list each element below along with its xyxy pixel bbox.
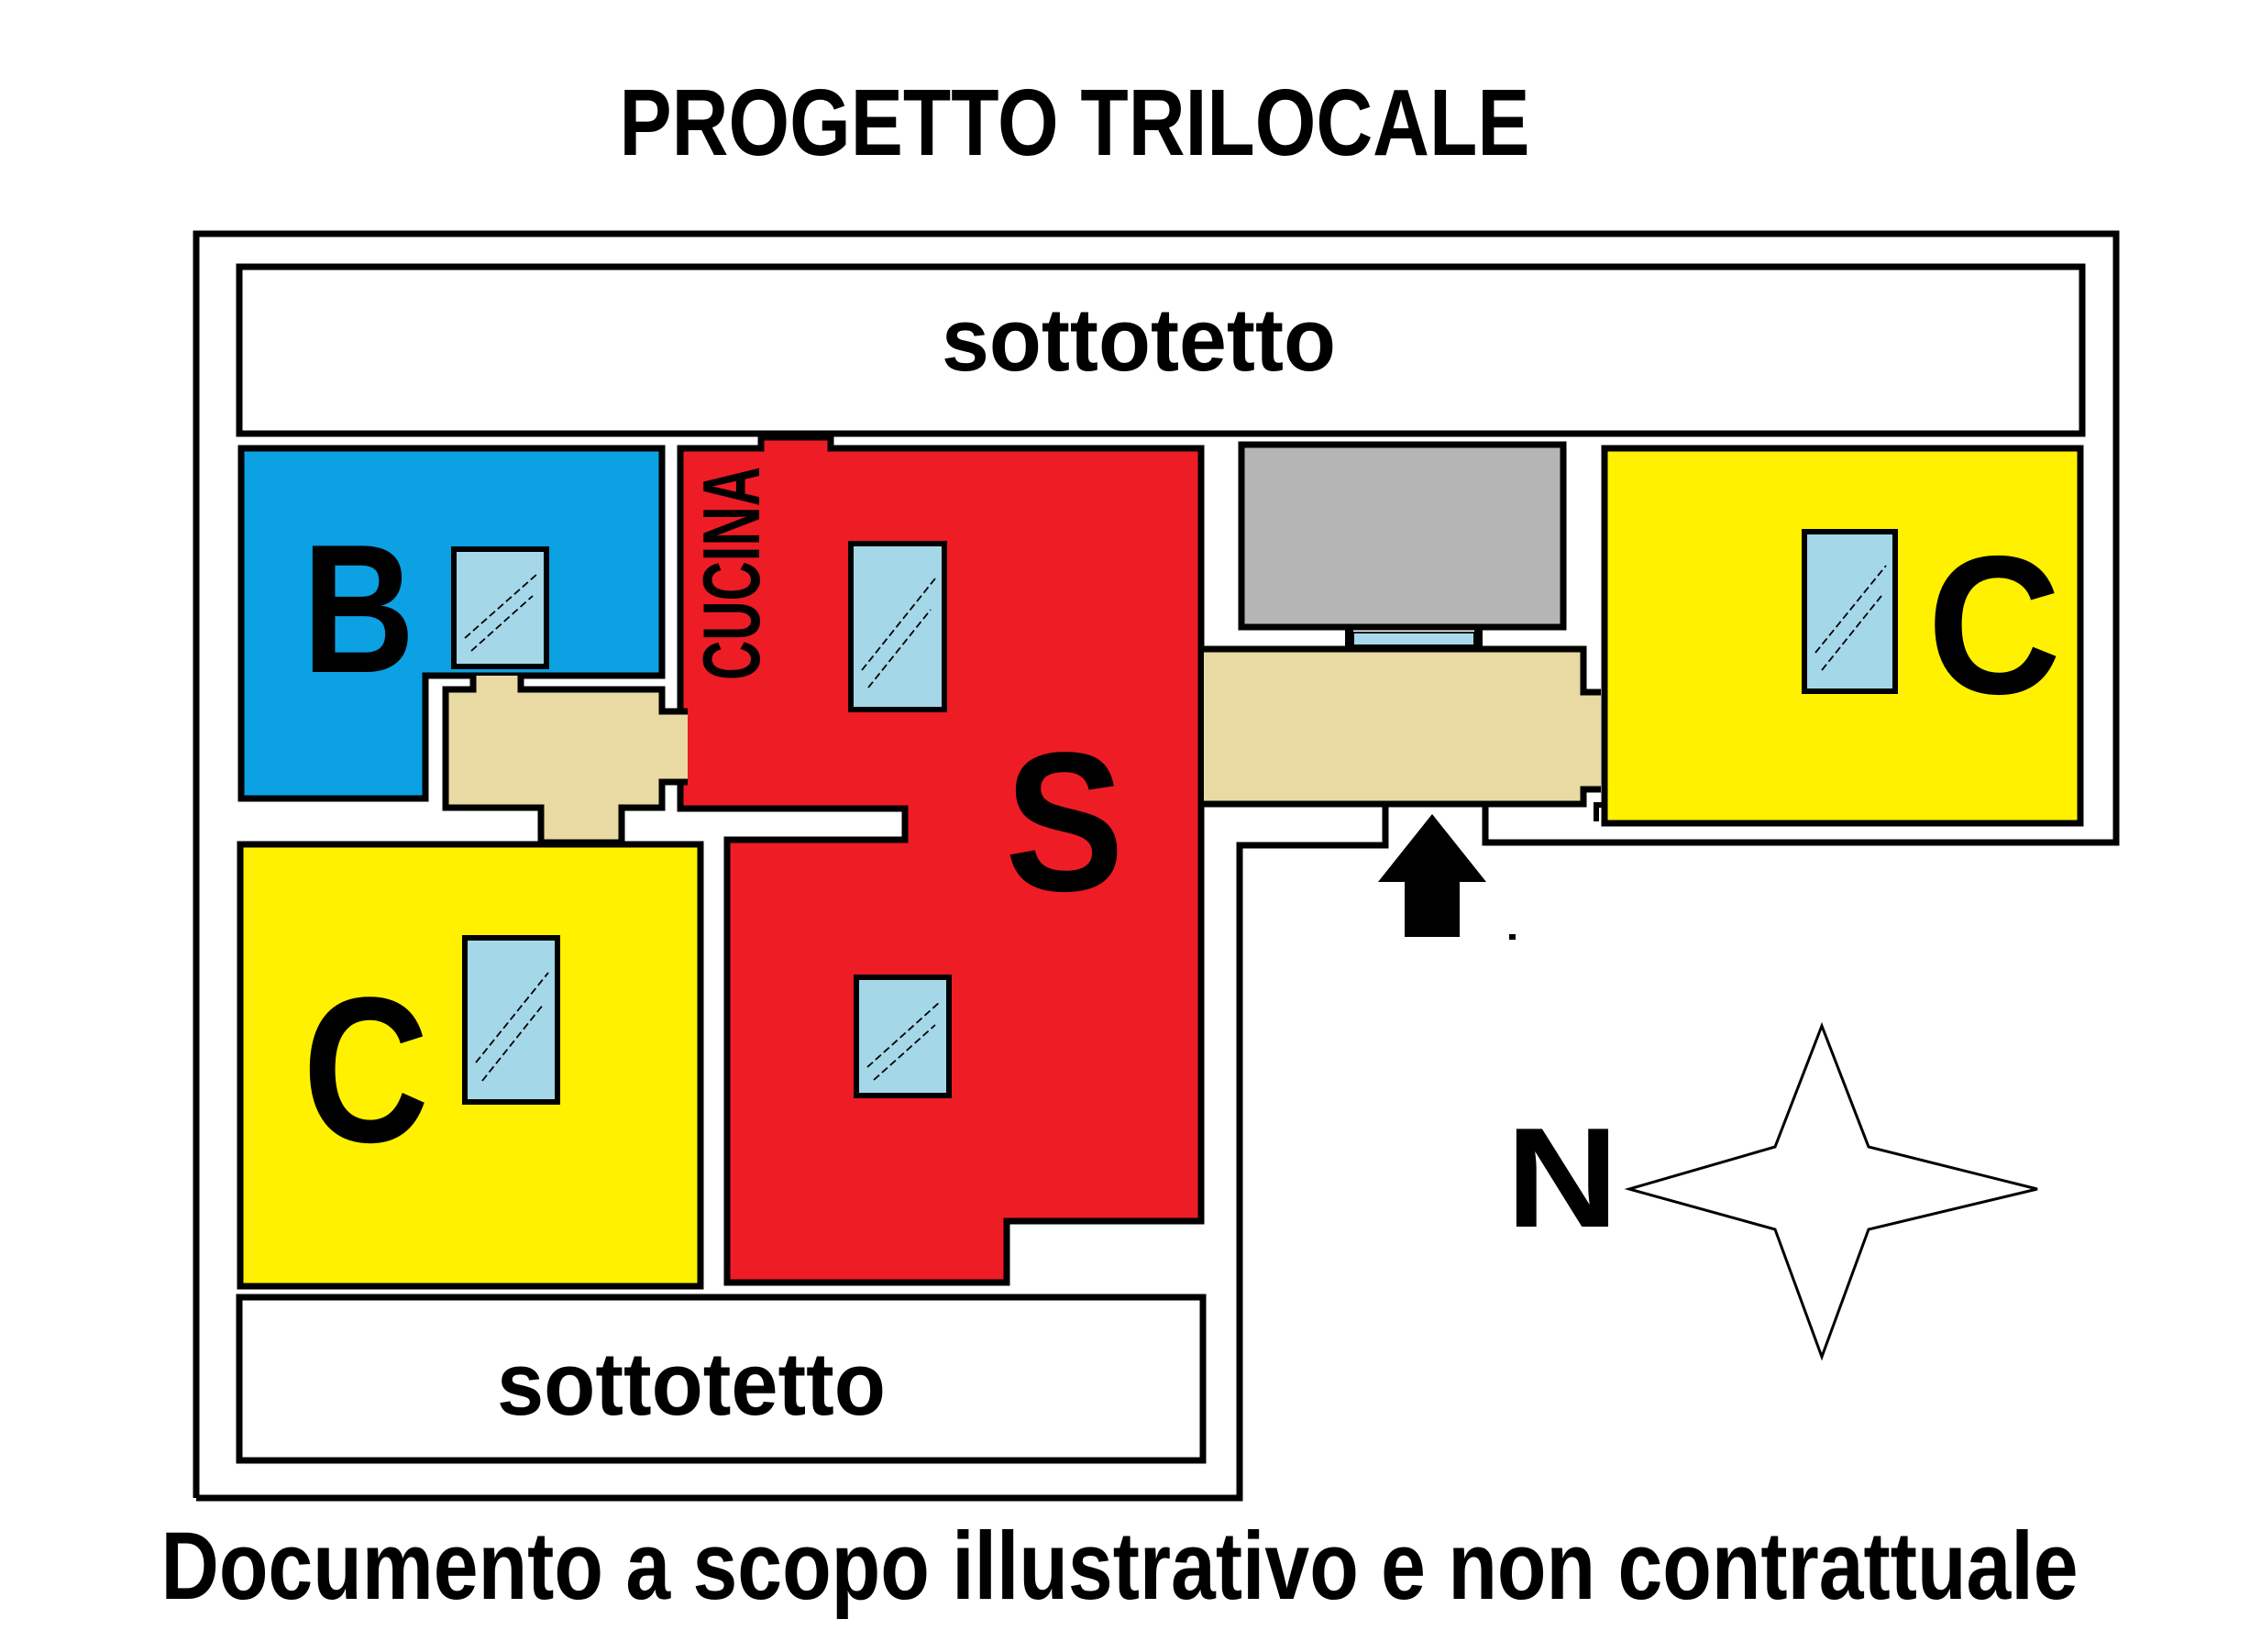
- svg-text:C: C: [303, 953, 429, 1185]
- svg-text:S: S: [1005, 710, 1124, 932]
- svg-text:B: B: [303, 507, 415, 711]
- svg-text:PROGETTO TRILOCALE: PROGETTO TRILOCALE: [620, 70, 1530, 175]
- svg-text:N: N: [1506, 1098, 1619, 1257]
- svg-text:C: C: [1927, 514, 2061, 735]
- svg-text:sottotetto: sottotetto: [497, 1334, 886, 1434]
- svg-text:sottotetto: sottotetto: [942, 290, 1336, 390]
- svg-text:Documento a scopo illustrativo: Documento a scopo illustrativo e non con…: [161, 1513, 2079, 1620]
- svg-text:CUCINA: CUCINA: [686, 467, 777, 680]
